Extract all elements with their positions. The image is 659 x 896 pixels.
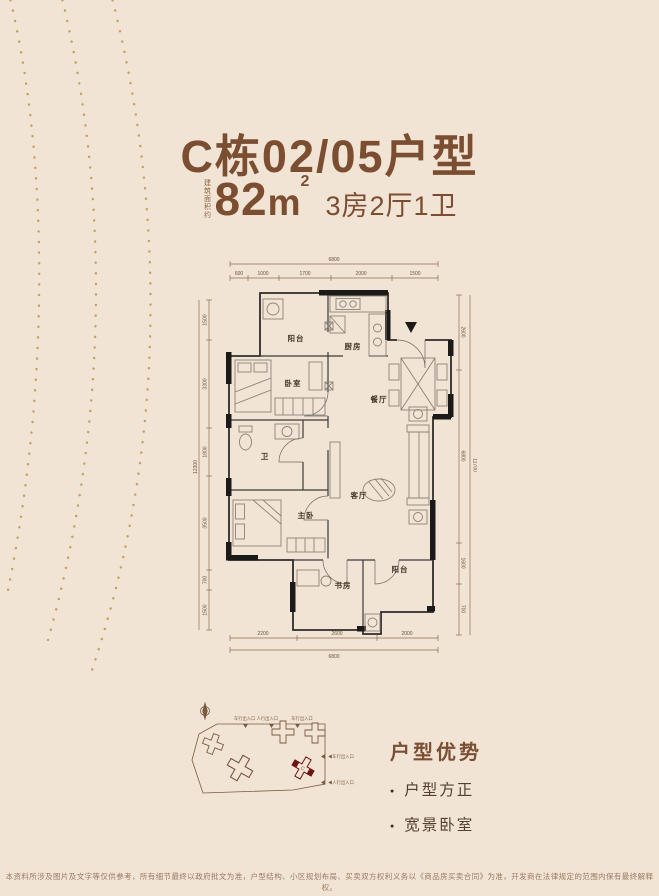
svg-text:1600: 1600 xyxy=(460,557,466,568)
disclaimer-text: 本资料所涉及图片及文字等仅供参考，所有细节最终以政府批文为准，户型结构、小区规划… xyxy=(0,871,659,893)
floor-plan: 6800 600 1000 1700 2000 1500 2200 2600 2… xyxy=(193,252,477,688)
gate-label-top-2: 车行出入口 xyxy=(291,715,312,722)
svg-text:700: 700 xyxy=(460,605,466,614)
room-labels: 阳台 厨房 卧室 餐厅 卫 主卧 客厅 书房 阳台 xyxy=(261,333,409,590)
svg-text:600: 600 xyxy=(235,271,244,277)
area-row: 建筑面积约 82 m2 3房2厅1卫 xyxy=(0,172,659,226)
gate-label-right-1: ◀车行出入口 xyxy=(328,753,354,760)
advantage-item: 户型方正 xyxy=(390,778,540,800)
compass-icon xyxy=(201,703,210,719)
svg-text:2000: 2000 xyxy=(401,631,412,637)
svg-text:3300: 3300 xyxy=(203,378,209,389)
bullet-icon xyxy=(390,780,404,798)
svg-text:2000: 2000 xyxy=(355,271,366,277)
dimensions-bottom: 2200 2600 2000 6800 xyxy=(230,631,438,660)
svg-text:12300: 12300 xyxy=(193,460,199,474)
area-note: 建筑面积约 xyxy=(201,179,211,219)
layout-spec: 3房2厅1卫 xyxy=(325,184,457,223)
dimensions-right: 2600 6800 1600 700 11700 xyxy=(456,295,477,635)
svg-text:6800: 6800 xyxy=(328,654,339,660)
svg-text:2600: 2600 xyxy=(460,326,466,337)
advantages-section: 户型优势 户型方正 宽景卧室 xyxy=(390,736,540,835)
gate-label-right-2: ◀人行出入口 xyxy=(328,779,354,786)
dimensions-left: 12300 1500 3300 1800 3500 700 1500 xyxy=(193,300,212,630)
gate-ticks xyxy=(243,724,300,728)
gate-label-top-1: 车行出入口 人行出入口 xyxy=(234,715,278,722)
dimensions-top: 6800 600 1000 1700 2000 1500 xyxy=(230,257,438,281)
svg-text:1500: 1500 xyxy=(203,604,209,615)
svg-text:1500: 1500 xyxy=(409,271,420,277)
svg-text:3500: 3500 xyxy=(203,517,209,528)
room-dining: 餐厅 xyxy=(370,394,388,404)
room-living: 客厅 xyxy=(350,490,368,500)
room-study: 书房 xyxy=(335,580,352,590)
svg-text:1000: 1000 xyxy=(257,271,268,277)
advantage-text: 户型方正 xyxy=(404,778,474,800)
advantage-item: 宽景卧室 xyxy=(390,813,540,835)
svg-text:11700: 11700 xyxy=(472,458,478,472)
building-highlighted: C xyxy=(288,753,318,783)
decorative-dotted-arcs xyxy=(0,0,220,700)
svg-text:2200: 2200 xyxy=(257,631,268,637)
svg-text:700: 700 xyxy=(203,576,209,585)
area-unit: m2 xyxy=(268,182,310,224)
svg-text:6800: 6800 xyxy=(460,450,466,461)
entry-arrow-icon xyxy=(405,322,417,333)
room-bath: 卫 xyxy=(261,452,270,461)
svg-text:1700: 1700 xyxy=(299,271,310,277)
room-master: 主卧 xyxy=(298,510,315,520)
area-value: 82 xyxy=(214,172,267,226)
room-kitchen: 厨房 xyxy=(345,341,362,351)
advantage-text: 宽景卧室 xyxy=(404,813,474,835)
buildings: C xyxy=(200,721,325,785)
gate-ticks-right xyxy=(321,754,325,785)
room-bedroom: 卧室 xyxy=(285,378,302,388)
svg-text:1800: 1800 xyxy=(203,446,209,457)
site-plan: C 车行出入口 人行出入口 车行出入口 ◀车行出入口 ◀人行出入口 xyxy=(183,698,393,830)
svg-text:6800: 6800 xyxy=(328,257,339,263)
bullet-icon xyxy=(390,815,404,833)
room-balcony-top: 阳台 xyxy=(288,333,305,343)
svg-text:2600: 2600 xyxy=(331,631,342,637)
svg-text:1500: 1500 xyxy=(203,314,209,325)
advantages-heading: 户型优势 xyxy=(390,736,540,765)
room-balcony-bottom: 阳台 xyxy=(392,564,409,574)
